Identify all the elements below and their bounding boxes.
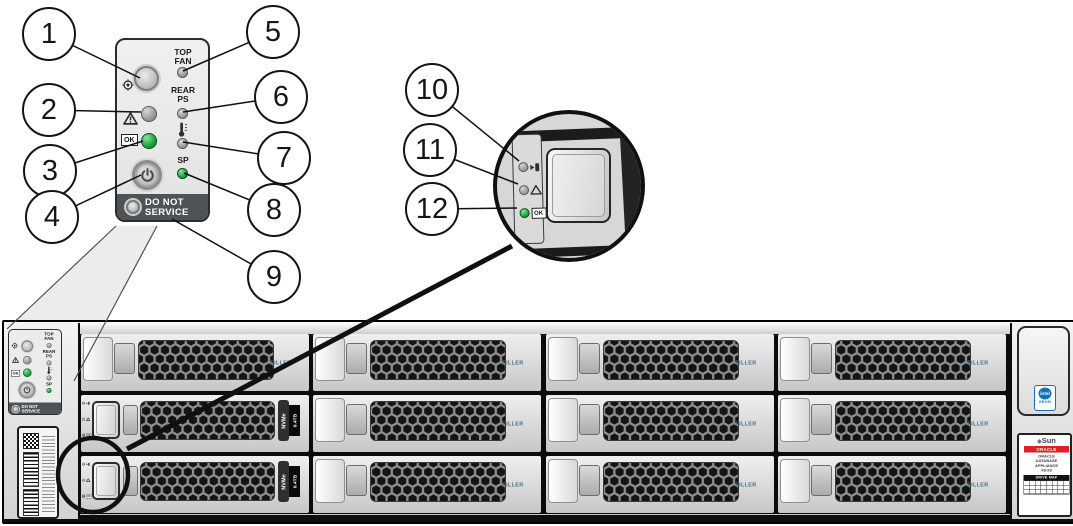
vent-grille xyxy=(140,462,275,501)
drive-lever[interactable] xyxy=(123,466,138,496)
callout-7: 7 xyxy=(257,131,311,185)
filler-lever[interactable] xyxy=(579,465,600,496)
locator-icon xyxy=(122,79,134,91)
drive-map-grid xyxy=(1024,480,1070,494)
front-panel-diagram: OK TOPFAN REARPS SP xyxy=(0,0,1073,526)
filler-lever[interactable] xyxy=(811,465,832,496)
drive-led-panel: OK xyxy=(512,134,545,245)
vent-grille xyxy=(835,462,971,502)
drive-bay-filler: FILLER xyxy=(313,456,541,513)
oracle-logo: ORACLE xyxy=(1024,446,1069,453)
drive-bay-filler: FILLER xyxy=(546,456,774,513)
chassis-bottom-rail xyxy=(4,514,1073,522)
nvme-label-tab: NVMe xyxy=(278,400,289,441)
mini-rear-ps-led xyxy=(47,361,52,366)
vent-grille xyxy=(370,462,506,502)
callout-2: 2 xyxy=(22,83,76,137)
sp-label: SP xyxy=(163,156,203,165)
chassis-right-ear: intel XEON ◆Sun ORACLE ORACLE DATABASE A… xyxy=(1010,323,1073,519)
intel-logo: intel xyxy=(1039,388,1052,400)
fault-icon xyxy=(123,112,138,125)
filler-label: FILLER xyxy=(731,420,761,426)
adjacent-bay-edge xyxy=(619,110,645,262)
fault-icon xyxy=(12,357,19,363)
serial-label-pull-tab[interactable] xyxy=(17,426,59,519)
mini-rear-ps-label: REARPS xyxy=(39,350,59,359)
sp-led xyxy=(177,168,188,179)
barcode xyxy=(23,452,39,487)
capacity-label-tab: 6.4TB xyxy=(289,405,300,436)
serial-text xyxy=(42,436,55,513)
drive-latch-release-button[interactable] xyxy=(92,462,120,500)
filler-lever[interactable] xyxy=(579,404,600,435)
vent-grille xyxy=(138,340,274,380)
filler-label: FILLER xyxy=(498,420,528,426)
filler-release-tab[interactable] xyxy=(548,398,578,442)
drive-bay-nvme: OK NVMe 6.4TB xyxy=(81,395,309,452)
drive-bay-nvme: OK NVMe 6.4TB xyxy=(81,456,309,513)
mini-temperature-led xyxy=(47,376,52,381)
filler-release-tab[interactable] xyxy=(780,337,810,381)
vent-grille xyxy=(370,401,506,441)
drive-latch-release-button[interactable] xyxy=(546,148,611,223)
locator-icon xyxy=(12,343,19,350)
drive-bay-filler: FILLER xyxy=(313,334,541,391)
drive-ok-led xyxy=(520,208,530,218)
drive-bay-filler: FILLER xyxy=(546,334,774,391)
right-ear-bezel: intel XEON xyxy=(1017,326,1070,416)
drive-closeup-magnifier: OK xyxy=(493,110,645,262)
product-label: ◆Sun ORACLE ORACLE DATABASE APPLIANCE X8… xyxy=(1017,433,1072,517)
drive-bay-filler: FILLER xyxy=(81,334,309,391)
drive-ready-to-remove-led xyxy=(82,463,85,466)
filler-label: FILLER xyxy=(963,420,993,426)
xeon-label: XEON xyxy=(1035,400,1055,405)
drive-led-column: OK xyxy=(82,399,92,448)
ok-icon: OK xyxy=(86,433,91,437)
filler-release-tab[interactable] xyxy=(548,337,578,381)
chassis-left-ear: OK TOPFAN REARPS SP xyxy=(4,323,80,519)
mini-sp-label: SP xyxy=(39,382,59,387)
vent-grille xyxy=(140,401,275,440)
callout-11: 11 xyxy=(403,123,457,177)
filler-release-tab[interactable] xyxy=(315,459,345,503)
ok-icon: OK xyxy=(531,208,546,219)
mini-front-panel: OK TOPFAN REARPS SP xyxy=(8,329,62,415)
power-button[interactable] xyxy=(132,160,162,190)
fault-led xyxy=(141,106,157,122)
filler-lever[interactable] xyxy=(346,404,367,435)
callout-6: 6 xyxy=(254,70,308,124)
fault-icon xyxy=(86,478,90,482)
product-name: ORACLE DATABASE APPLIANCE X8-2S xyxy=(1019,454,1072,473)
drive-fault-led xyxy=(519,185,529,195)
callout-4: 4 xyxy=(25,190,79,244)
filler-release-tab[interactable] xyxy=(315,398,345,442)
locator-button[interactable] xyxy=(134,66,159,91)
ready-to-remove-icon xyxy=(529,162,540,173)
filler-label: FILLER xyxy=(731,359,761,365)
filler-release-tab[interactable] xyxy=(780,459,810,503)
filler-release-tab[interactable] xyxy=(780,398,810,442)
mini-sp-led xyxy=(47,388,52,393)
barcode xyxy=(23,489,39,516)
front-panel-detail: OK TOPFAN REARPS SP DO NOTSERVICE xyxy=(115,38,210,222)
callout-12: 12 xyxy=(405,182,459,236)
drive-lever[interactable] xyxy=(123,405,138,435)
rear-ps-led xyxy=(177,108,188,119)
filler-release-tab[interactable] xyxy=(83,337,113,381)
do-not-service-led xyxy=(126,200,140,214)
drive-bay-filler: FILLER xyxy=(546,395,774,452)
drive-fault-led xyxy=(82,479,85,482)
mini-fault-led xyxy=(23,356,32,365)
nvme-label-tab: NVMe xyxy=(278,461,289,502)
vent-grille xyxy=(603,340,739,380)
filler-label: FILLER xyxy=(731,481,761,487)
mini-top-fan-label: TOPFAN xyxy=(39,332,59,341)
drive-fault-led xyxy=(82,418,85,421)
drive-bottom-edge xyxy=(493,244,645,260)
drive-bay-filler: FILLER xyxy=(778,334,1006,391)
filler-release-tab[interactable] xyxy=(548,459,578,503)
drive-latch-release-button[interactable] xyxy=(92,401,120,439)
filler-label: FILLER xyxy=(498,359,528,365)
ok-icon: OK xyxy=(11,370,20,377)
vent-grille xyxy=(603,462,739,502)
mini-locator-button[interactable] xyxy=(22,341,34,353)
top-fan-led xyxy=(177,67,188,78)
filler-release-tab[interactable] xyxy=(315,337,345,381)
vent-grille xyxy=(603,401,739,441)
callout-8: 8 xyxy=(247,183,301,237)
capacity-label-tab: 6.4TB xyxy=(289,466,300,497)
filler-lever[interactable] xyxy=(811,404,832,435)
mini-do-not-service-led xyxy=(13,406,20,413)
mini-ok-led xyxy=(23,369,32,378)
fault-icon xyxy=(530,185,542,195)
callout-1: 1 xyxy=(22,7,76,61)
filler-lever[interactable] xyxy=(579,343,600,374)
mini-top-fan-led xyxy=(47,343,52,348)
ok-icon: OK xyxy=(86,494,91,498)
rear-ps-label: REARPS xyxy=(163,86,203,103)
vent-grille xyxy=(835,401,971,441)
filler-lever[interactable] xyxy=(114,343,135,374)
ready-to-remove-icon xyxy=(86,401,90,405)
filler-lever[interactable] xyxy=(346,343,367,374)
filler-label: FILLER xyxy=(498,481,528,487)
vent-grille xyxy=(835,340,971,380)
sun-logo: ◆Sun xyxy=(1019,435,1072,445)
temperature-led xyxy=(177,138,188,149)
filler-lever[interactable] xyxy=(811,343,832,374)
power-icon xyxy=(23,386,31,394)
drive-ready-to-remove-led xyxy=(82,402,85,405)
qr-code xyxy=(23,433,39,449)
filler-lever[interactable] xyxy=(346,465,367,496)
power-icon xyxy=(140,168,155,183)
server-chassis-front: OK TOPFAN REARPS SP xyxy=(2,320,1073,524)
drive-led-column: OK xyxy=(82,460,92,509)
drive-bay-filler: FILLER xyxy=(778,395,1006,452)
ok-led xyxy=(141,133,157,149)
drive-ok-led xyxy=(82,495,85,498)
ok-icon: OK xyxy=(121,134,138,146)
vent-grille xyxy=(370,340,506,380)
intel-xeon-badge: intel XEON xyxy=(1034,385,1056,411)
drive-bay-filler: FILLER xyxy=(313,395,541,452)
top-fan-label: TOPFAN xyxy=(163,48,203,65)
fault-icon xyxy=(86,417,90,421)
do-not-service-indicator: DO NOTSERVICE xyxy=(117,194,208,220)
filler-label: FILLER xyxy=(963,481,993,487)
ready-to-remove-icon xyxy=(86,462,90,466)
drive-ok-led xyxy=(82,434,85,437)
mini-do-not-service: DO NOTSERVICE xyxy=(9,403,62,416)
callout-9: 9 xyxy=(247,250,301,304)
callout-10: 10 xyxy=(405,63,459,117)
callout-5: 5 xyxy=(246,5,300,59)
filler-label: FILLER xyxy=(963,359,993,365)
drive-bay-filler: FILLER xyxy=(778,456,1006,513)
temperature-icon xyxy=(47,367,52,375)
filler-label: FILLER xyxy=(266,359,296,365)
mini-power-button[interactable] xyxy=(19,382,36,399)
temperature-icon xyxy=(178,122,187,138)
drive-ready-to-remove-led xyxy=(518,162,528,172)
